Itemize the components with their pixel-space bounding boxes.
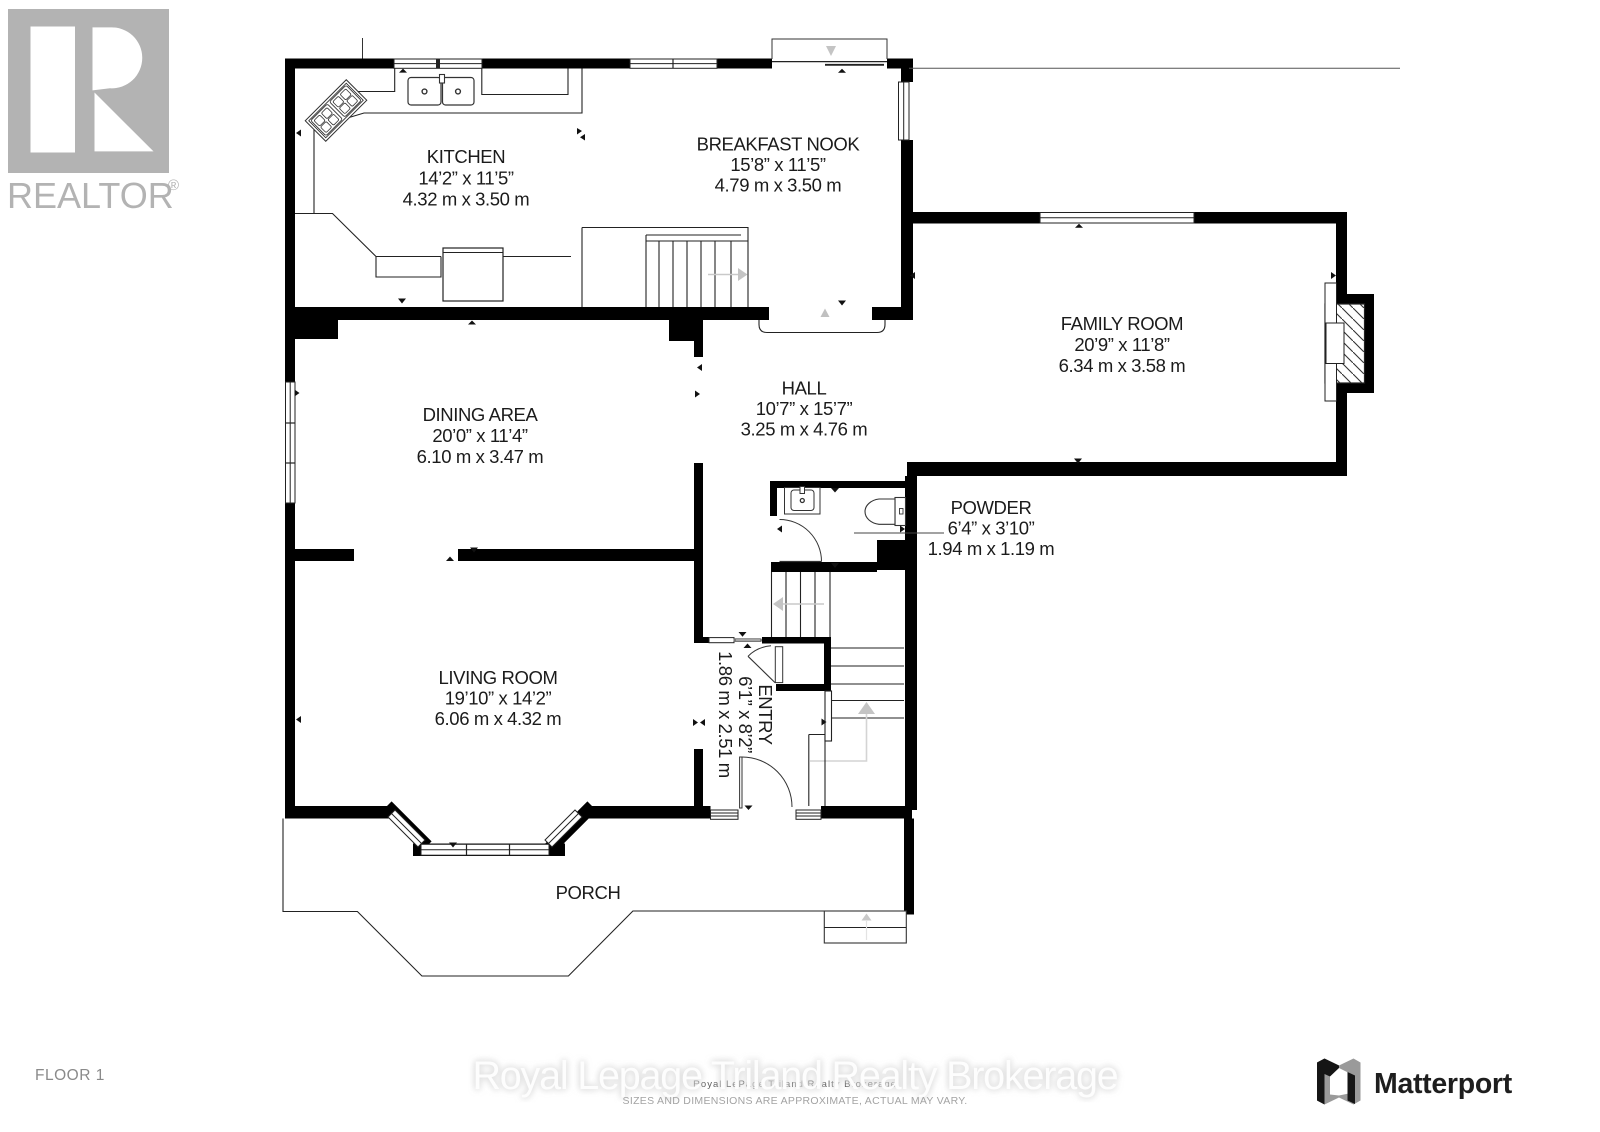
svg-text:DINING AREA: DINING AREA: [423, 404, 539, 425]
svg-text:Matterport: Matterport: [1374, 1068, 1513, 1100]
svg-text:10’7” x 15’7”: 10’7” x 15’7”: [756, 398, 853, 419]
svg-text:FLOOR 1: FLOOR 1: [35, 1067, 105, 1084]
svg-text:1.94 m x 1.19 m: 1.94 m x 1.19 m: [928, 538, 1055, 559]
svg-text:6’1” x 8’2”: 6’1” x 8’2”: [735, 676, 756, 753]
svg-text:LIVING ROOM: LIVING ROOM: [439, 667, 558, 688]
svg-text:6.06 m x 4.32 m: 6.06 m x 4.32 m: [435, 708, 562, 729]
svg-text:20’9” x 11’8”: 20’9” x 11’8”: [1074, 334, 1169, 355]
svg-text:6.34 m x 3.58 m: 6.34 m x 3.58 m: [1059, 355, 1186, 376]
svg-text:BREAKFAST NOOK: BREAKFAST NOOK: [697, 134, 861, 155]
svg-text:ENTRY: ENTRY: [755, 684, 776, 744]
svg-text:4.79 m x 3.50 m: 4.79 m x 3.50 m: [715, 175, 842, 196]
svg-text:FAMILY ROOM: FAMILY ROOM: [1061, 313, 1183, 334]
svg-text:15’8” x 11’5”: 15’8” x 11’5”: [730, 154, 825, 175]
svg-text:PORCH: PORCH: [556, 882, 621, 903]
svg-text:HALL: HALL: [782, 378, 827, 399]
svg-text:®: ®: [168, 177, 179, 194]
svg-text:6’4” x 3’10”: 6’4” x 3’10”: [948, 518, 1035, 539]
svg-text:POWDER: POWDER: [951, 497, 1032, 518]
svg-text:3.25 m x 4.76 m: 3.25 m x 4.76 m: [741, 419, 868, 440]
svg-text:6.10 m x 3.47 m: 6.10 m x 3.47 m: [417, 446, 544, 467]
svg-text:SIZES AND DIMENSIONS ARE APPRO: SIZES AND DIMENSIONS ARE APPROXIMATE, AC…: [623, 1095, 968, 1107]
svg-text:4.32 m x 3.50 m: 4.32 m x 3.50 m: [403, 189, 530, 210]
svg-text:Royal Lepage Triland Realty Br: Royal Lepage Triland Realty Brokerage: [472, 1054, 1117, 1098]
svg-text:14’2” x 11’5”: 14’2” x 11’5”: [418, 168, 513, 189]
svg-text:20’0” x 11’4”: 20’0” x 11’4”: [432, 425, 527, 446]
svg-text:1.86 m x 2.51 m: 1.86 m x 2.51 m: [715, 651, 736, 778]
svg-text:19’10” x 14’2”: 19’10” x 14’2”: [445, 688, 552, 709]
svg-text:REALTOR: REALTOR: [7, 175, 174, 216]
svg-text:KITCHEN: KITCHEN: [427, 146, 505, 167]
